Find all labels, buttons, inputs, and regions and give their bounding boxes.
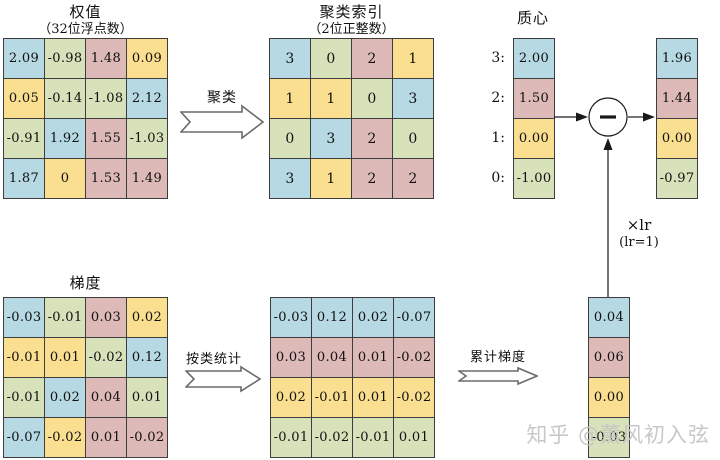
matrix-cell: 0	[352, 79, 392, 118]
grouped-gradients-matrix: -0.030.120.02-0.070.030.040.01-0.020.02-…	[270, 297, 435, 458]
matrix-cell: 0.03	[271, 338, 311, 377]
cluster-block-arrow-icon	[180, 104, 264, 140]
gradient-to-minus-arrowhead	[604, 138, 613, 150]
quantization-training-diagram: 权值 （32位浮点数） 2.09-0.981.480.090.05-0.14-1…	[0, 0, 720, 460]
matrix-cell: 2.00	[514, 39, 554, 78]
matrix-cell: 1.55	[86, 119, 126, 158]
watermark: 知乎 @薰风初入弦	[526, 419, 710, 449]
matrix-cell: 1.87	[4, 159, 44, 198]
lr-note: (lr=1)	[610, 235, 668, 251]
matrix-cell: -0.98	[45, 39, 85, 78]
matrix-cell: 0.01	[353, 338, 393, 377]
matrix-cell: 1.53	[86, 159, 126, 198]
matrix-cell: 1.96	[657, 39, 697, 78]
matrix-cell: -0.02	[312, 418, 352, 457]
matrix-cell: 0.02	[271, 378, 311, 417]
matrix-cell: 0.01	[45, 338, 85, 377]
matrix-cell: 0	[45, 159, 85, 198]
matrix-cell: 1	[270, 79, 310, 118]
matrix-cell: 2.12	[127, 79, 167, 118]
matrix-cell: 1.44	[657, 79, 697, 118]
matrix-cell: 1.50	[514, 79, 554, 118]
centroid-row-labels: 3: 2: 1: 0:	[475, 38, 505, 198]
matrix-cell: 0.02	[353, 298, 393, 337]
centroids-column: 2.001.500.00-1.00	[513, 38, 555, 199]
centroid-to-minus-arrowhead	[576, 113, 588, 122]
matrix-cell: 0	[270, 119, 310, 158]
gradients-matrix: -0.03-0.010.030.02-0.010.01-0.020.12-0.0…	[3, 297, 168, 458]
matrix-cell: 0.12	[127, 338, 167, 377]
centroids-title: 质心	[493, 7, 573, 28]
matrix-cell: 3	[270, 39, 310, 78]
matrix-cell: 3	[393, 79, 433, 118]
matrix-cell: 0.02	[45, 378, 85, 417]
centroid-label-3: 3:	[475, 38, 505, 78]
matrix-cell: -1.08	[86, 79, 126, 118]
cluster-index-matrix: 3021110303203122	[269, 38, 434, 199]
cluster-index-subtitle: （2位正整数）	[269, 18, 434, 37]
matrix-cell: 0.01	[86, 418, 126, 457]
matrix-cell: 1	[393, 39, 433, 78]
gradients-title: 梯度	[3, 272, 168, 293]
matrix-cell: 2	[352, 119, 392, 158]
centroid-label-2: 2:	[475, 78, 505, 118]
matrix-cell: 0.00	[657, 119, 697, 158]
minus-to-result-arrowhead	[643, 113, 655, 122]
matrix-cell: 0.02	[127, 298, 167, 337]
matrix-cell: -0.02	[394, 338, 434, 377]
matrix-cell: 0.01	[394, 418, 434, 457]
matrix-cell: 2	[352, 159, 392, 198]
matrix-cell: 0.03	[86, 298, 126, 337]
matrix-cell: -0.14	[45, 79, 85, 118]
matrix-cell: 1	[311, 159, 351, 198]
matrix-cell: 0.04	[86, 378, 126, 417]
centroid-label-1: 1:	[475, 118, 505, 158]
accumulate-arrow-label: 累计梯度	[458, 346, 538, 365]
matrix-cell: -0.01	[4, 378, 44, 417]
matrix-cell: 0.01	[353, 378, 393, 417]
matrix-cell: 0.05	[4, 79, 44, 118]
lr-multiply-label: ×lr	[610, 216, 668, 235]
matrix-cell: 1.49	[127, 159, 167, 198]
centroid-label-0: 0:	[475, 158, 505, 198]
matrix-cell: -0.07	[4, 418, 44, 457]
matrix-cell: 1.92	[45, 119, 85, 158]
matrix-cell: 0.04	[589, 298, 629, 337]
minus-operator-circle	[589, 98, 627, 136]
matrix-cell: -0.01	[4, 338, 44, 377]
matrix-cell: 2	[393, 159, 433, 198]
matrix-cell: 0.01	[127, 378, 167, 417]
matrix-cell: -0.02	[45, 418, 85, 457]
matrix-cell: 1.48	[86, 39, 126, 78]
weights-subtitle: （32位浮点数）	[3, 18, 168, 37]
matrix-cell: 0	[393, 119, 433, 158]
matrix-cell: -0.02	[127, 418, 167, 457]
updated-centroids-column: 1.961.440.00-0.97	[656, 38, 698, 199]
matrix-cell: 0.00	[514, 119, 554, 158]
matrix-cell: 2	[352, 39, 392, 78]
learning-rate-label: ×lr (lr=1)	[610, 216, 668, 251]
matrix-cell: -0.01	[271, 418, 311, 457]
matrix-cell: 0.00	[589, 378, 629, 417]
matrix-cell: -0.97	[657, 159, 697, 198]
matrix-cell: -0.02	[394, 378, 434, 417]
matrix-cell: 0.04	[312, 338, 352, 377]
matrix-cell: -0.03	[4, 298, 44, 337]
matrix-cell: -0.03	[271, 298, 311, 337]
matrix-cell: 0	[311, 39, 351, 78]
matrix-cell: 2.09	[4, 39, 44, 78]
matrix-cell: 0.12	[312, 298, 352, 337]
matrix-cell: 1	[311, 79, 351, 118]
matrix-cell: -0.01	[353, 418, 393, 457]
matrix-cell: -0.02	[86, 338, 126, 377]
matrix-cell: -0.07	[394, 298, 434, 337]
matrix-cell: -0.01	[312, 378, 352, 417]
accumulate-block-arrow-icon	[458, 366, 538, 386]
matrix-cell: -1.03	[127, 119, 167, 158]
matrix-cell: 0.09	[127, 39, 167, 78]
matrix-cell: 3	[311, 119, 351, 158]
weights-matrix: 2.09-0.981.480.090.05-0.14-1.082.12-0.91…	[3, 38, 168, 199]
matrix-cell: -0.91	[4, 119, 44, 158]
group-block-arrow-icon	[185, 365, 261, 393]
matrix-cell: 0.06	[589, 338, 629, 377]
matrix-cell: -1.00	[514, 159, 554, 198]
matrix-cell: -0.01	[45, 298, 85, 337]
matrix-cell: 3	[270, 159, 310, 198]
